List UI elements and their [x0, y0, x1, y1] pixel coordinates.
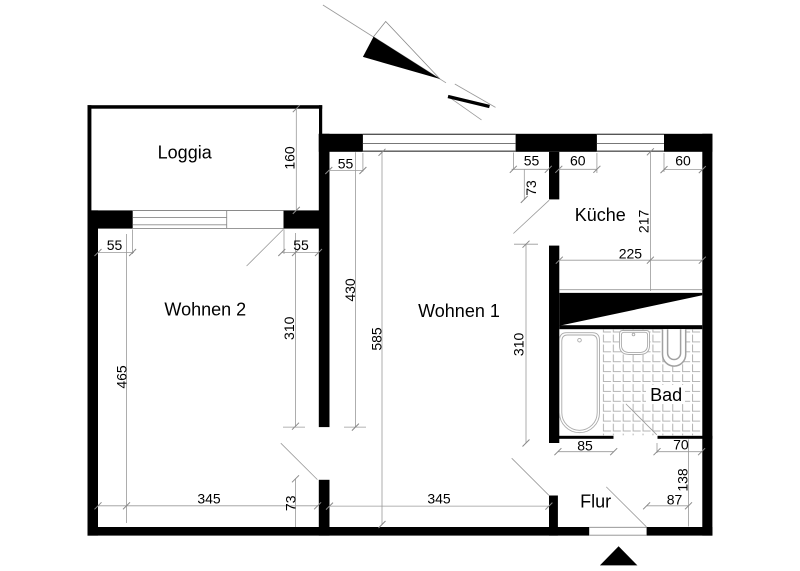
svg-text:225: 225: [619, 246, 643, 262]
svg-text:55: 55: [293, 237, 309, 253]
svg-text:Küche: Küche: [575, 205, 626, 225]
svg-text:55: 55: [524, 153, 540, 169]
svg-text:345: 345: [197, 490, 221, 506]
svg-text:217: 217: [636, 210, 652, 234]
svg-text:585: 585: [368, 327, 384, 351]
svg-text:70: 70: [673, 436, 689, 452]
svg-text:55: 55: [107, 237, 123, 253]
svg-text:Flur: Flur: [580, 491, 611, 511]
svg-text:Wohnen 2: Wohnen 2: [164, 300, 246, 320]
svg-text:345: 345: [427, 491, 451, 507]
svg-text:Wohnen 1: Wohnen 1: [418, 301, 500, 321]
svg-text:465: 465: [113, 365, 129, 389]
svg-text:60: 60: [570, 153, 586, 169]
svg-text:60: 60: [675, 153, 691, 169]
svg-text:87: 87: [667, 491, 683, 507]
svg-text:Loggia: Loggia: [158, 143, 213, 163]
svg-text:Bad: Bad: [650, 385, 682, 405]
svg-text:430: 430: [342, 278, 358, 302]
svg-text:160: 160: [281, 146, 297, 170]
svg-text:310: 310: [510, 333, 526, 357]
svg-text:310: 310: [281, 316, 297, 340]
svg-text:73: 73: [523, 180, 539, 196]
svg-text:138: 138: [675, 468, 691, 492]
svg-text:73: 73: [282, 495, 298, 511]
svg-text:55: 55: [338, 155, 354, 171]
svg-text:85: 85: [577, 438, 593, 454]
